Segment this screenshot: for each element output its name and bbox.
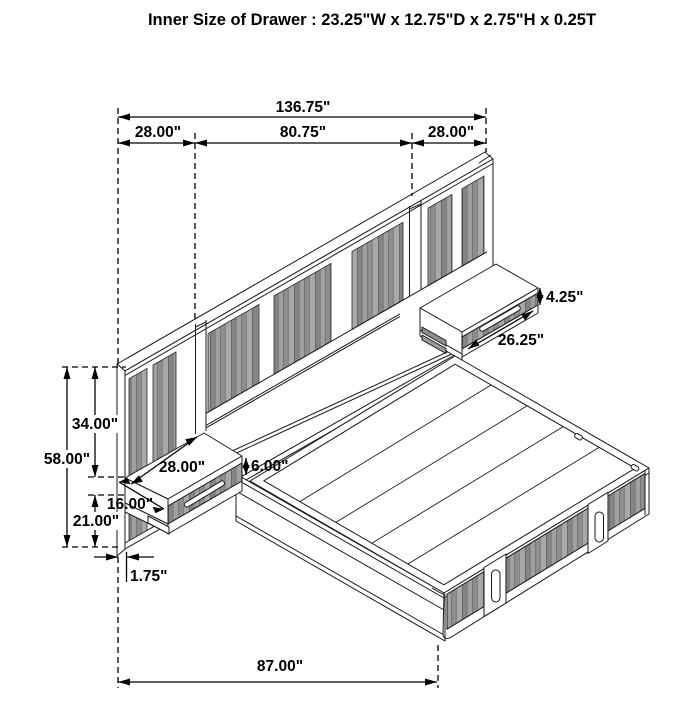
- svg-text:26.25": 26.25": [498, 332, 544, 349]
- svg-text:28.00": 28.00": [135, 124, 181, 141]
- svg-text:34.00": 34.00": [72, 416, 118, 433]
- svg-text:4.25": 4.25": [546, 289, 584, 306]
- svg-text:136.75": 136.75": [276, 99, 331, 116]
- svg-text:21.00": 21.00": [73, 513, 119, 530]
- svg-text:6.00": 6.00": [251, 458, 289, 475]
- svg-text:16.00": 16.00": [107, 496, 153, 513]
- svg-text:Inner Size of Drawer : 23.25"W: Inner Size of Drawer : 23.25"W x 12.75"D…: [148, 11, 596, 29]
- svg-text:58.00": 58.00": [44, 451, 90, 468]
- svg-text:28.00": 28.00": [159, 459, 205, 476]
- svg-text:1.75": 1.75": [130, 568, 168, 585]
- svg-text:87.00": 87.00": [257, 658, 303, 675]
- svg-text:80.75": 80.75": [280, 124, 326, 141]
- svg-text:28.00": 28.00": [428, 124, 474, 141]
